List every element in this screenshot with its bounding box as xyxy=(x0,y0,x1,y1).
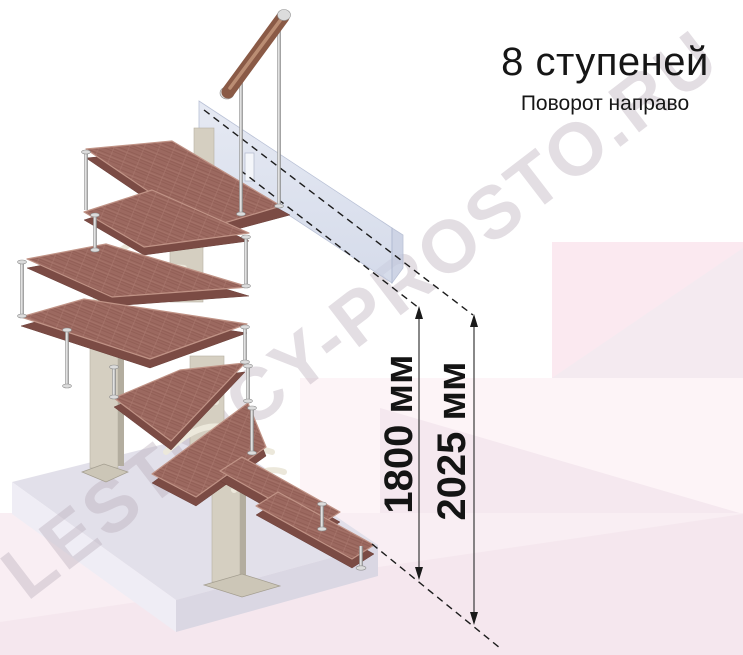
title-block: 8 ступеней Поворот направо xyxy=(450,40,743,116)
page-subtitle: Поворот направо xyxy=(450,91,743,116)
tread-6 xyxy=(27,244,249,306)
stairs-diagram-page: LESTNICY-PROSTO.RU xyxy=(0,0,743,655)
dimension-label-1800: 1800 мм xyxy=(377,354,421,513)
dimension-line-2025: 2025 мм xyxy=(430,314,478,625)
dimension-line-1800: 1800 мм xyxy=(377,306,423,580)
floor-dashed-line xyxy=(372,544,500,648)
dimension-label-2025: 2025 мм xyxy=(430,361,474,520)
page-title: 8 ступеней xyxy=(450,40,743,84)
slab-bracket xyxy=(245,153,254,181)
baluster xyxy=(244,364,253,403)
baluster xyxy=(242,235,251,288)
handrail-end-fitting xyxy=(278,10,291,21)
column-base-plate xyxy=(82,464,128,482)
baluster xyxy=(18,260,27,318)
baluster xyxy=(241,325,250,364)
